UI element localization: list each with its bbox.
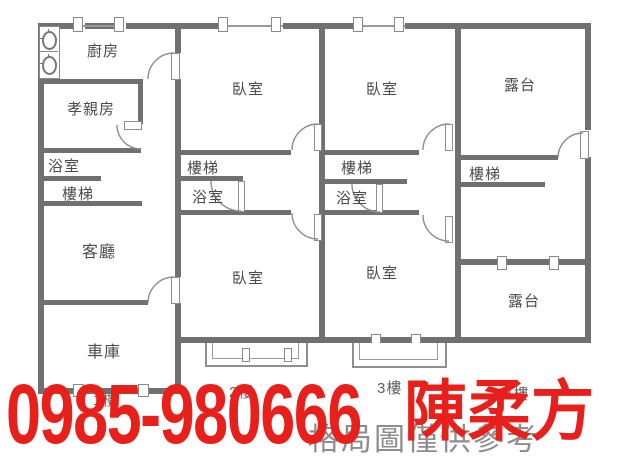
window-icon — [394, 17, 404, 32]
floor-label-3f: 3樓 — [377, 377, 402, 398]
window-icon — [114, 17, 124, 32]
floor-plan: 廚房 孝親房 浴室 樓梯 客廳 車庫 臥室 樓梯 浴室 臥室 臥室 樓梯 浴室 … — [0, 0, 640, 461]
door-leaf — [445, 124, 453, 151]
wall — [44, 300, 148, 305]
room-label-parents-room: 孝親房 — [67, 98, 115, 119]
room-label-bedroom-3b: 臥室 — [366, 262, 398, 283]
wall — [181, 150, 291, 155]
door-leaf — [124, 121, 142, 130]
contact-phone-number: 0985-980666 — [6, 372, 361, 456]
stove-burner-icon — [42, 56, 57, 75]
door-leaf — [314, 214, 322, 241]
window-icon — [284, 348, 292, 362]
wall — [585, 23, 591, 130]
room-label-stairs-3: 樓梯 — [341, 157, 373, 178]
window-icon — [73, 17, 83, 32]
door-leaf — [171, 277, 180, 304]
wall — [126, 23, 222, 29]
door-leaf — [171, 53, 180, 80]
room-label-bathroom-2: 浴室 — [192, 186, 224, 207]
room-label-living-room: 客廳 — [82, 238, 116, 262]
window-icon — [353, 17, 363, 32]
wall — [44, 79, 143, 84]
stove-divider — [39, 51, 58, 52]
contact-agent-name: 陳柔方 — [404, 378, 594, 444]
wall — [461, 155, 558, 160]
window-icon — [271, 17, 281, 32]
room-label-terrace-bottom: 露台 — [508, 290, 540, 311]
room-label-bathroom-1: 浴室 — [48, 155, 80, 176]
room-label-stairs-4: 樓梯 — [469, 163, 501, 184]
balcony-unit3-inner — [359, 343, 438, 360]
wall — [461, 259, 586, 265]
stove-burner-icon — [42, 31, 57, 50]
door-leaf — [238, 181, 245, 212]
room-label-garage: 車庫 — [87, 338, 121, 362]
wall — [44, 148, 141, 153]
wall — [324, 210, 419, 215]
room-label-terrace-top: 露台 — [504, 74, 536, 95]
window-line — [77, 25, 118, 27]
wall — [44, 176, 101, 181]
wall — [585, 157, 591, 343]
wall — [324, 179, 407, 184]
room-label-stairs-1: 樓梯 — [62, 183, 94, 204]
wall — [405, 23, 591, 29]
room-label-stairs-2: 樓梯 — [187, 157, 219, 178]
wall — [324, 150, 419, 155]
wall — [138, 84, 143, 124]
door-leaf — [580, 131, 589, 159]
room-label-bedroom-3a: 臥室 — [366, 78, 398, 99]
room-label-bedroom-2b: 臥室 — [232, 267, 264, 288]
window-icon — [218, 17, 228, 32]
window-icon — [497, 256, 507, 270]
door-leaf — [445, 216, 453, 243]
wall — [175, 23, 181, 53]
window-icon — [242, 348, 250, 362]
room-label-bathroom-3: 浴室 — [336, 187, 368, 208]
window-icon — [549, 256, 559, 270]
room-label-bedroom-2a: 臥室 — [232, 78, 264, 99]
door-leaf — [376, 184, 383, 213]
door-leaf — [314, 124, 322, 151]
wall — [181, 210, 291, 215]
room-label-kitchen: 廚房 — [87, 40, 119, 61]
